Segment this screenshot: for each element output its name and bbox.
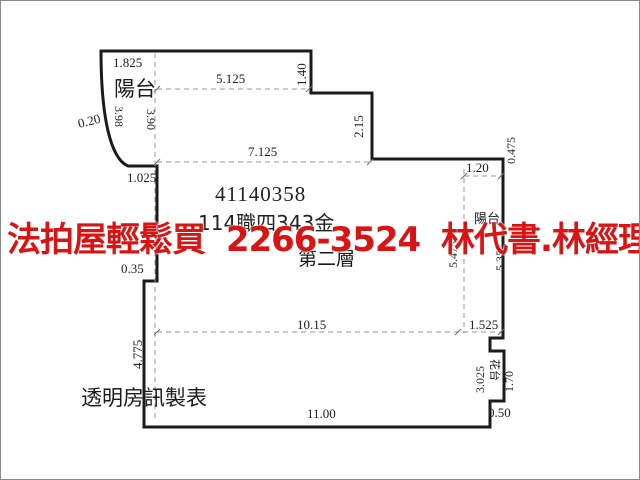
case-id: 41140358	[215, 182, 306, 206]
planter-label: 花台	[488, 359, 502, 381]
dim-bottom-width: 11.00	[307, 406, 336, 421]
ad-watermark-text: 法拍屋輕鬆買 2266-3524 林代書.林經理	[7, 212, 640, 261]
maker-label: 透明房訊製表	[81, 386, 207, 410]
dim-lower-right-width: 1.525	[469, 317, 498, 332]
dim-planter-section-height: 3.025	[473, 366, 487, 393]
left-balcony-label: 陽台	[114, 77, 156, 101]
dim-balcony-arc-length: 3.98	[112, 106, 126, 127]
dim-balcony-offset: 0.20	[76, 111, 102, 131]
dim-balcony-height: 3.90	[144, 109, 158, 130]
dim-right-step-height: 2.15	[351, 115, 366, 138]
dim-balcony-bottom-width: 1.025	[127, 170, 156, 185]
dim-left-lower-height: 4.775	[130, 340, 145, 369]
dim-mid-width: 7.125	[248, 144, 277, 159]
floorplan-image: 1.825 5.125 1.40 7.125 2.15 0.20 3.98 3.…	[0, 0, 640, 480]
dim-top-step-height: 1.40	[294, 63, 309, 86]
dim-planter-length: 1.70	[502, 371, 516, 392]
dim-right-top-step: 0.475	[504, 137, 518, 164]
dim-top-left-width: 1.825	[113, 55, 142, 70]
dim-right-balcony-width: 1.20	[466, 160, 489, 175]
dim-left-step-width: 0.35	[121, 261, 144, 276]
dim-lower-width: 10.15	[297, 317, 326, 332]
dim-top-width: 5.125	[216, 71, 245, 86]
dim-planter-depth: 0.50	[488, 405, 511, 420]
